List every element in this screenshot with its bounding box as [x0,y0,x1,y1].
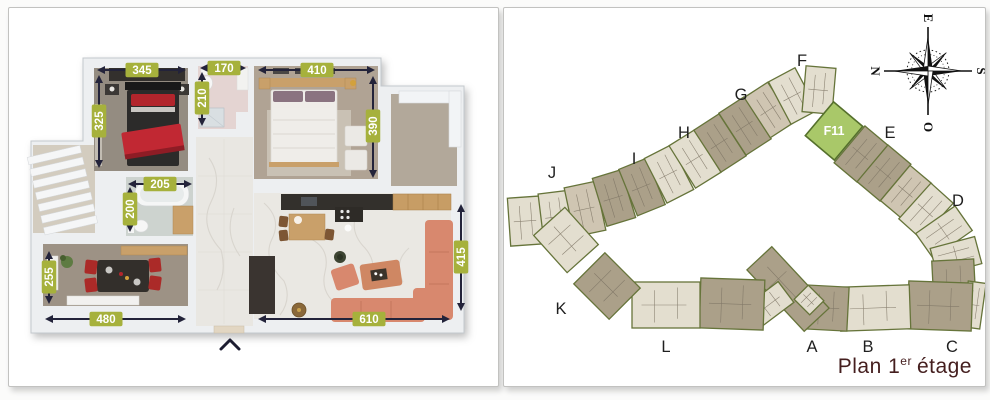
bedroom-2-furniture [259,68,367,176]
building-label-e: E [884,124,895,142]
building-label-h: H [678,124,690,142]
svg-text:390: 390 [368,116,380,135]
building-label-i: I [632,150,637,168]
floor-caption-prefix: Plan 1 [838,355,901,378]
building-block-28[interactable] [574,253,640,319]
siteplan-panel: F11 A B C D E F G H I J K L [503,7,986,387]
buildings-layer [507,66,985,332]
building-label-l: L [661,338,670,356]
floor-caption-suffix: étage [917,355,972,378]
building-label-g: G [735,86,748,104]
entrance-arrow [221,340,239,349]
building-label-d: D [952,192,964,210]
building-label-b: B [862,338,873,356]
compass-east: E [921,14,936,23]
svg-text:410: 410 [307,65,326,77]
svg-text:480: 480 [96,314,115,326]
svg-text:170: 170 [214,63,233,75]
svg-text:200: 200 [125,199,137,218]
svg-text:610: 610 [359,314,378,326]
building-label-k: K [555,300,566,318]
compass-south: S [974,67,985,74]
terrace-wall-2 [449,91,461,147]
terrace-floor [391,94,457,186]
building-block-21[interactable] [839,285,910,331]
page: 345170410205480610325210390200255415 F11… [0,0,990,400]
building-label-f: F [797,52,807,70]
floor-caption: Plan 1erétage [838,355,972,379]
building-block-26[interactable] [699,278,765,330]
building-label-c: C [946,338,958,356]
siteplan: F11 A B C D E F G H I J K L [504,8,985,386]
svg-text:325: 325 [94,111,106,131]
unit-f11-label: F11 [824,124,845,138]
floorplan-3d: 345170410205480610325210390200255415 [9,8,498,386]
building-block-27[interactable] [632,282,700,328]
compass-west: O [921,122,936,132]
svg-text:255: 255 [44,267,56,287]
compass-north: N [868,66,883,76]
svg-text:210: 210 [197,88,209,107]
entrance-door [214,326,244,333]
building-label-j: J [548,164,556,182]
compass-rose: E S O N [868,14,985,132]
building-label-a: A [806,338,817,356]
building-block-20[interactable] [907,281,973,331]
hall-cabinet [249,256,275,314]
hall-floor [196,137,253,326]
dimension-bathroom-2-height: 200 [123,187,138,232]
svg-text:345: 345 [132,65,152,77]
staircase [27,145,97,235]
compass-cardinal-points [894,37,962,105]
floor-caption-sup: er [900,354,912,368]
floorplan-panel: 345170410205480610325210390200255415 [8,7,499,387]
svg-text:205: 205 [150,179,170,191]
wall-notch [236,112,248,129]
svg-text:415: 415 [456,247,468,267]
